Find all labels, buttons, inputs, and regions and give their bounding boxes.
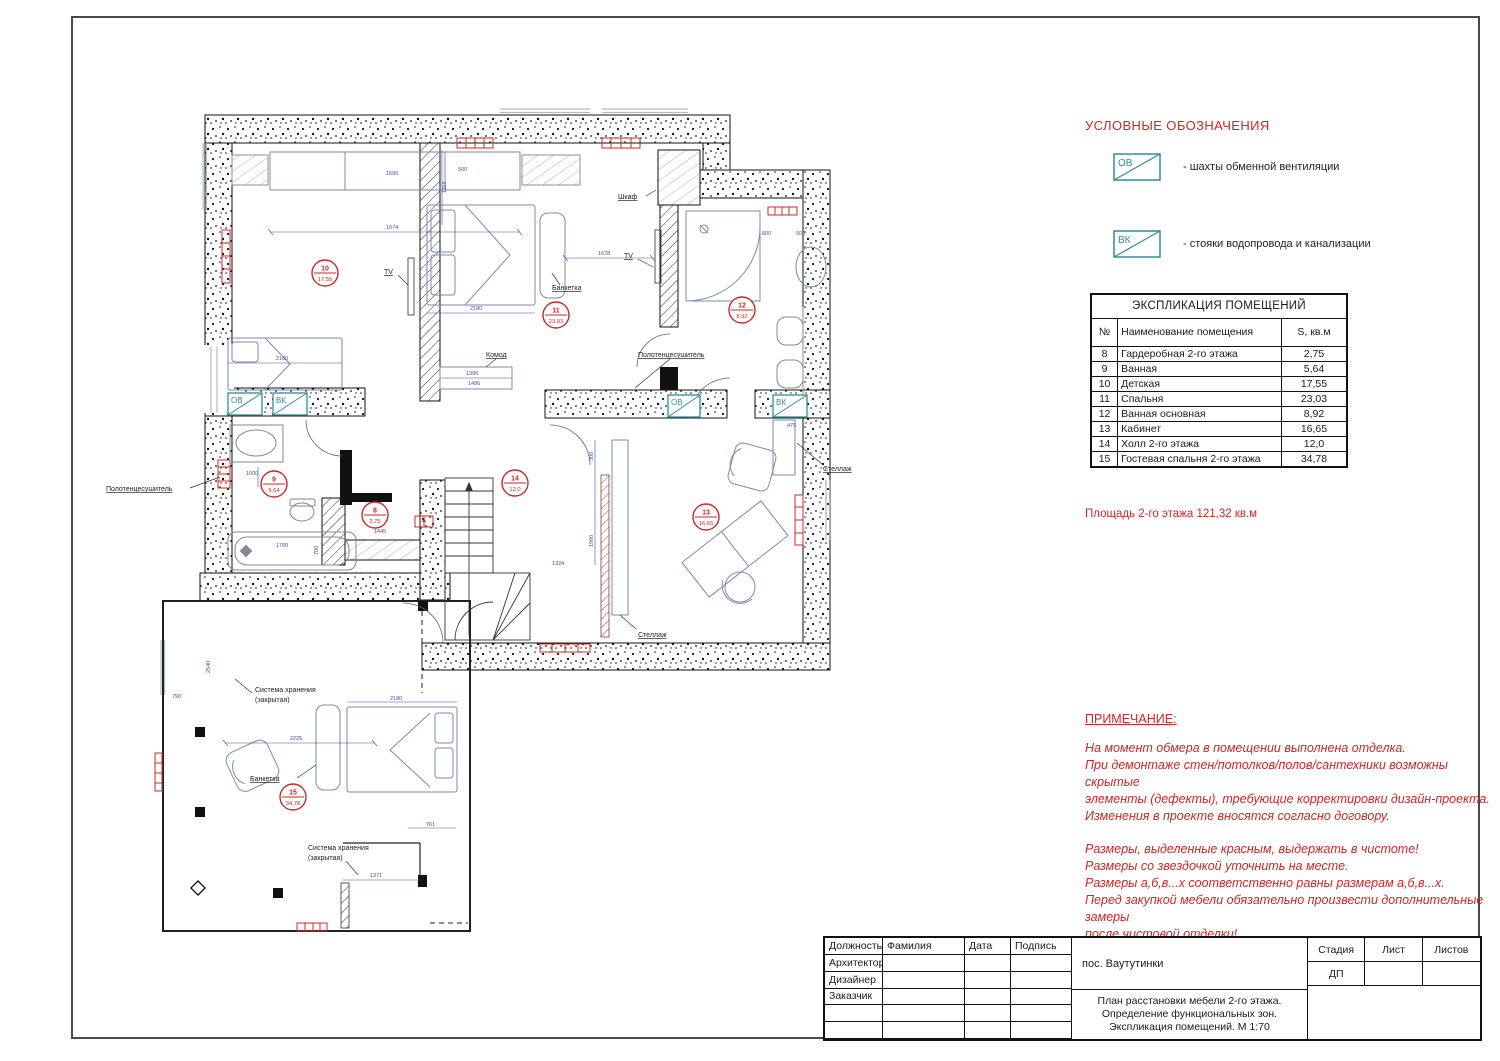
total-area-note: Площадь 2-го этажа 121,32 кв.м xyxy=(1085,508,1257,520)
stage-label: Стадия xyxy=(1308,938,1365,962)
storage-label: (закрытая) xyxy=(255,697,290,704)
list-label: Лист xyxy=(1365,938,1422,962)
note-line: Перед закупкой мебели обязательно произв… xyxy=(1085,892,1500,926)
tb-col-header: Фамилия xyxy=(883,938,965,955)
tb-empty xyxy=(965,1005,1011,1022)
tb-empty xyxy=(965,1022,1011,1039)
svg-text:500: 500 xyxy=(458,167,467,173)
svg-text:2180: 2180 xyxy=(390,696,402,702)
tb-empty xyxy=(825,1005,883,1022)
tb-empty xyxy=(883,972,965,989)
legend-title: УСЛОВНЫЕ ОБОЗНАЧЕНИЯ xyxy=(1085,118,1465,133)
svg-text:8: 8 xyxy=(373,508,377,515)
shelf-label: Стеллаж xyxy=(638,632,667,639)
svg-text:12,0: 12,0 xyxy=(509,487,520,493)
svg-text:1445: 1445 xyxy=(374,529,386,535)
svg-text:ВК: ВК xyxy=(1118,235,1131,246)
svg-text:ОВ: ОВ xyxy=(1118,158,1133,169)
table-row: 9Ванная5,64 xyxy=(1091,361,1347,376)
svg-text:1000: 1000 xyxy=(246,471,258,477)
svg-text:ВК: ВК xyxy=(276,396,286,405)
svg-text:5,64: 5,64 xyxy=(268,488,280,494)
explication-table: ЭКСПЛИКАЦИЯ ПОМЕЩЕНИЙ № Наименование пом… xyxy=(1090,293,1348,468)
room-marker: 95,64 xyxy=(261,471,287,497)
table-header-row: № Наименование помещения S, кв.м xyxy=(1091,318,1347,346)
svg-text:761: 761 xyxy=(426,822,435,828)
tb-empty xyxy=(883,955,965,972)
note-line: элементы (дефекты), требующие корректиро… xyxy=(1085,791,1500,808)
note-line: Размеры со звездочкой уточнить на месте. xyxy=(1085,858,1500,875)
notes-title: ПРИМЕЧАНИЕ: xyxy=(1085,712,1500,726)
table-row: 13Кабинет16,65 xyxy=(1091,421,1347,436)
room-marker: 1017,55 xyxy=(312,260,338,286)
stairs xyxy=(445,478,530,640)
tb-empty xyxy=(1308,986,1480,1039)
svg-text:1674: 1674 xyxy=(386,225,398,231)
note-line: Изменения в проекте вносятся согласно до… xyxy=(1085,808,1500,825)
svg-text:13: 13 xyxy=(702,510,710,517)
svg-text:475: 475 xyxy=(787,423,796,429)
tb-empty xyxy=(883,1005,965,1022)
sheet-title-line: Экспликация помещений. М 1:70 xyxy=(1109,1021,1270,1034)
note-line: Размеры, выделенные красным, выдержать в… xyxy=(1085,841,1500,858)
tb-col-header: Должность xyxy=(825,938,883,955)
svg-text:14: 14 xyxy=(511,476,519,483)
svg-text:1678: 1678 xyxy=(598,251,610,257)
col-header-name: Наименование помещения xyxy=(1118,318,1282,346)
table-title: ЭКСПЛИКАЦИЯ ПОМЕЩЕНИЙ xyxy=(1091,294,1347,318)
svg-text:1700: 1700 xyxy=(276,543,288,549)
svg-text:23,03: 23,03 xyxy=(549,319,564,325)
tb-empty xyxy=(1011,1022,1072,1039)
svg-text:700: 700 xyxy=(314,546,320,555)
legend-item-vk: ВК - стояки водопровода и канализации xyxy=(1113,230,1371,258)
note-line: На момент обмера в помещении выполнена о… xyxy=(1085,740,1500,757)
room-marker: 1534,78 xyxy=(280,784,306,810)
tb-empty xyxy=(1011,989,1072,1006)
svg-text:2540: 2540 xyxy=(206,661,212,673)
legend-item-label: - шахты обменной вентиляции xyxy=(1183,161,1339,173)
table-row: 11Спальня23,03 xyxy=(1091,391,1347,406)
sheet-title-line: План расстановки мебели 2-го этажа. xyxy=(1098,995,1282,1008)
note-line: Размеры а,б,в...х соответственно равны р… xyxy=(1085,875,1500,892)
svg-text:2180: 2180 xyxy=(470,306,482,312)
svg-text:8,92: 8,92 xyxy=(736,314,747,320)
furniture xyxy=(223,152,826,794)
svg-text:34,78: 34,78 xyxy=(286,801,301,807)
towel-rail-label: Полотенцесушитель xyxy=(638,352,705,359)
svg-text:ОВ: ОВ xyxy=(671,398,683,407)
tb-role: Архитектор xyxy=(825,955,883,972)
title-block: Должность Фамилия Дата Подпись Архитекто… xyxy=(823,936,1482,1041)
shelf-label: Стеллаж xyxy=(823,466,852,473)
svg-text:800: 800 xyxy=(762,231,771,237)
tb-empty xyxy=(1011,1005,1072,1022)
svg-text:500: 500 xyxy=(796,231,805,237)
stage-value: ДП xyxy=(1308,962,1365,986)
tb-role: Дизайнер xyxy=(825,972,883,989)
note-line: При демонтаже стен/потолков/полов/сантех… xyxy=(1085,757,1500,791)
tb-empty xyxy=(1011,972,1072,989)
tv-label: TV xyxy=(624,253,633,260)
legend-item-label: - стояки водопровода и канализации xyxy=(1183,238,1371,250)
svg-text:1371: 1371 xyxy=(370,873,382,879)
room-marker: 128,92 xyxy=(729,297,755,323)
dresser-label: Комод xyxy=(486,352,507,359)
svg-text:1118: 1118 xyxy=(442,182,448,193)
vk-riser-icon: ВК xyxy=(1113,230,1161,258)
svg-text:2225: 2225 xyxy=(290,736,302,742)
title-block-project: пос. Ваутутинки План расстановки мебели … xyxy=(1072,938,1308,1039)
svg-text:16,65: 16,65 xyxy=(699,521,714,527)
svg-text:2180: 2180 xyxy=(276,356,288,362)
svg-text:12: 12 xyxy=(738,303,746,310)
storage-label: (закрытая) xyxy=(308,855,343,862)
room-marker: 1412,0 xyxy=(502,470,528,496)
svg-text:790: 790 xyxy=(172,694,181,700)
table-row: 14Холл 2-го этажа12,0 xyxy=(1091,436,1347,451)
svg-text:2,75: 2,75 xyxy=(369,519,380,525)
tv-label: TV xyxy=(384,269,393,276)
svg-text:1300: 1300 xyxy=(466,371,478,377)
col-header-num: № xyxy=(1091,318,1118,346)
drawing-sheet: ОВ ВК ОВ ВК xyxy=(0,0,1500,1061)
tb-col-header: Подпись xyxy=(1011,938,1072,955)
svg-text:1900: 1900 xyxy=(589,535,595,547)
svg-text:1324: 1324 xyxy=(552,561,564,567)
col-header-area: S, кв.м xyxy=(1281,318,1347,346)
table-row: 15Гостевая спальня 2-го этажа34,78 xyxy=(1091,451,1347,467)
title-block-stage: Стадия Лист Листов ДП xyxy=(1308,938,1480,1039)
lists-label: Листов xyxy=(1423,938,1480,962)
room15-stubs xyxy=(191,601,428,898)
svg-text:15: 15 xyxy=(289,790,297,797)
svg-text:1600: 1600 xyxy=(386,171,398,177)
room-marker: 1316,65 xyxy=(693,504,719,530)
room-marker: 1123,03 xyxy=(543,302,569,328)
ov-shaft-icon: ОВ xyxy=(1113,153,1161,181)
table-row: 12Ванная основная8,92 xyxy=(1091,406,1347,421)
towel-rail-label: Полотенцесушитель xyxy=(106,486,173,493)
tb-empty xyxy=(883,989,965,1006)
svg-text:ВК: ВК xyxy=(776,398,786,407)
tb-empty xyxy=(965,972,1011,989)
tb-empty xyxy=(1365,962,1422,986)
radiators xyxy=(155,138,803,931)
bench-label: Банкетка xyxy=(552,285,582,292)
svg-text:ОВ: ОВ xyxy=(231,396,243,405)
wardrobe-label: Шкаф xyxy=(618,194,638,201)
svg-text:10: 10 xyxy=(321,266,329,273)
tb-empty xyxy=(825,1022,883,1039)
tb-empty xyxy=(1423,962,1480,986)
svg-text:9: 9 xyxy=(272,477,276,484)
sheet-title: План расстановки мебели 2-го этажа. Опре… xyxy=(1072,990,1307,1039)
storage-label: Система хранения xyxy=(255,687,316,694)
table-row: 10Детская17,55 xyxy=(1091,376,1347,391)
room15-hatch-wall xyxy=(341,883,349,928)
room-marker: 82,75 xyxy=(362,502,388,528)
tb-empty xyxy=(965,955,1011,972)
table-row: 8Гардеробная 2-го этажа2,75 xyxy=(1091,346,1347,361)
tb-col-header: Дата xyxy=(965,938,1011,955)
svg-text:11: 11 xyxy=(552,308,560,315)
svg-text:1486: 1486 xyxy=(468,381,480,387)
bench-label: Банкетка xyxy=(250,776,280,783)
legend-item-ov: ОВ - шахты обменной вентиляции xyxy=(1113,153,1339,181)
tb-role: Заказчик xyxy=(825,989,883,1006)
floor-plan: ОВ ВК ОВ ВК xyxy=(90,95,880,945)
legend: УСЛОВНЫЕ ОБОЗНАЧЕНИЯ xyxy=(1085,118,1465,133)
notes-block: ПРИМЕЧАНИЕ: На момент обмера в помещении… xyxy=(1085,712,1500,943)
project-name: пос. Ваутутинки xyxy=(1072,938,1307,990)
storage-label: Система хранения xyxy=(308,845,369,852)
sheet-title-line: Определение функциональных зон. xyxy=(1102,1008,1277,1021)
tb-empty xyxy=(883,1022,965,1039)
tb-empty xyxy=(1011,955,1072,972)
tb-empty xyxy=(965,989,1011,1006)
title-block-signatures: Должность Фамилия Дата Подпись Архитекто… xyxy=(825,938,1072,1039)
svg-text:300: 300 xyxy=(589,452,595,461)
svg-text:17,55: 17,55 xyxy=(318,277,333,283)
